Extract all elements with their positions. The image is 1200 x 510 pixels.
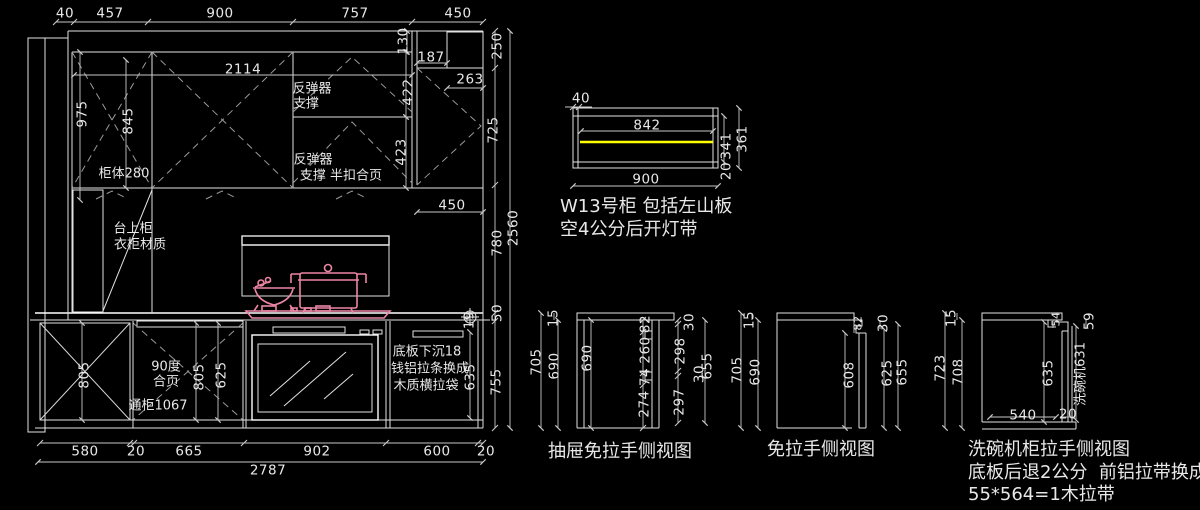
oven-knob (360, 330, 369, 334)
dimension-label: 608 (843, 361, 857, 388)
dimension-label: 780 (491, 229, 505, 256)
dimension-label: 665 (175, 445, 202, 459)
annotation-label: 支撑 (293, 98, 319, 111)
dimension-label: 30 (683, 313, 697, 331)
dimension-label: 625 (215, 361, 229, 388)
glass-shine (270, 352, 353, 406)
dimension-label: 2787 (250, 464, 286, 478)
cooktop-and-cookware (246, 265, 390, 319)
dimension-label: 50 (491, 304, 505, 322)
dimension-label: 690 (581, 344, 595, 371)
view-title: 空4公分后开灯带 (560, 221, 697, 239)
dimension-label: 690 (548, 352, 562, 379)
dimension-label: 59 (1083, 312, 1097, 330)
dimension-label: 842 (633, 119, 660, 133)
dimension-label: 423 (395, 138, 409, 165)
annotation-label: 通柜1067 (128, 400, 187, 413)
dimension-label: 82 (639, 315, 653, 333)
dimension-label: 655 (896, 358, 910, 385)
dimension-label: 708 (952, 358, 966, 385)
dimension-label: 298 (674, 337, 688, 364)
dimension-label: 20 (477, 445, 495, 459)
dimension-label: 975 (76, 100, 90, 127)
built-in-oven (252, 327, 382, 420)
view-title: 洗碗机柜拉手侧视图 (968, 441, 1130, 459)
dimension-label: 902 (303, 445, 330, 459)
dimension-label: 450 (438, 199, 465, 213)
dimension-label: 805 (78, 361, 92, 388)
dimension-label: 20 (127, 445, 145, 459)
dimension-label: 19 (463, 311, 477, 329)
dimension-label: 725 (487, 116, 501, 143)
annotation-label: 反弹器 (293, 154, 332, 167)
annotation-label: 柜体280 (99, 168, 150, 181)
dimension-label: 900 (632, 173, 659, 187)
dimension-label: 705 (530, 348, 544, 375)
dimension-label: 361 (736, 125, 750, 152)
oven-handle (273, 327, 345, 333)
dimension-label: 15 (945, 309, 959, 327)
annotation-label: 90度 (151, 361, 181, 374)
pillar-hatch (73, 190, 103, 312)
dimension-label: 625 (881, 359, 895, 386)
dimension-label: 845 (122, 107, 136, 134)
dimension-label: 690 (749, 358, 763, 385)
dimension-label: 635 (464, 363, 478, 390)
annotation-label: 反弹器 (292, 83, 331, 96)
annotation-label: 衣柜材质 (114, 239, 166, 252)
dimension-label: 82 (853, 316, 864, 331)
cad-linework (0, 0, 1200, 510)
dimension-label: 635 (1042, 359, 1056, 386)
dimension-label: 757 (341, 7, 368, 21)
annotation-label: 台上柜 (113, 223, 152, 236)
pot (300, 273, 357, 308)
dimension-label: 805 (193, 363, 207, 390)
dimension-label: 74 (639, 368, 653, 386)
view-title: W13号柜 包括左山板 (560, 198, 732, 216)
view-title: 免拉手侧视图 (767, 441, 875, 459)
dimension-label: 297 (673, 388, 687, 415)
dimension-label: 54 (1051, 312, 1062, 327)
view-title: 抽屉免拉手侧视图 (548, 443, 692, 461)
view-title: 55*564=1木拉带 (968, 486, 1115, 504)
dimension-label: 900 (206, 7, 233, 21)
main-elevation (28, 19, 510, 462)
dimension-label: 263 (456, 73, 483, 87)
dimension-label: 40 (56, 7, 74, 21)
brick-wall-hatch (45, 38, 68, 320)
dimension-label: 580 (71, 445, 98, 459)
dimension-label: 15 (547, 309, 561, 327)
dimension-label: 2114 (225, 63, 261, 77)
dimension-label: 187 (417, 51, 444, 65)
dimension-label: 422 (402, 78, 416, 105)
dimension-label: 274 (638, 390, 652, 417)
oven-knob (373, 330, 382, 334)
dimension-label: 705 (731, 356, 745, 383)
annotation-label: 支撑 半扣合页 (300, 170, 382, 183)
dimension-label: 130 (397, 27, 411, 54)
dimension-label: 723 (934, 354, 948, 381)
dimension-label: 755 (490, 368, 504, 395)
cad-viewport: 404579007574502114130187250263422反弹器支撑97… (0, 0, 1200, 510)
soffit-hatch (447, 32, 483, 68)
dimension-label: 540 (1009, 409, 1036, 423)
annotation-label: 洗碗机631 (1075, 342, 1088, 406)
dimension-label: 2560 (507, 210, 521, 246)
annotation-label: 底板下沉18 (393, 346, 462, 359)
counter-hatch (137, 321, 243, 327)
dimension-label: 20 (1059, 408, 1077, 422)
dimension-label: 30 (877, 314, 891, 332)
dimension-label: 15 (743, 311, 757, 329)
dimension-label: 260 (639, 336, 653, 363)
dimension-label: 341 (720, 132, 734, 159)
dimension-label: 40 (572, 92, 590, 106)
dimension-label: 655 (701, 352, 715, 379)
concrete-wall-hatch (28, 38, 45, 432)
dimension-label: 20 (720, 162, 734, 180)
dimension-label: 250 (491, 32, 505, 59)
dimension-label: 450 (444, 7, 471, 21)
dimension-label: 600 (423, 445, 450, 459)
view-title: 底板后退2公分 前铝拉带换成 (968, 464, 1200, 482)
annotation-label: 钱铝拉条换成 (391, 363, 469, 376)
dimension-label: 457 (96, 7, 123, 21)
drawer-handle-slot (413, 331, 463, 337)
annotation-label: 合页 (153, 376, 179, 389)
annotation-label: 木质横拉袋 (393, 380, 458, 393)
splash-panel (242, 236, 389, 296)
